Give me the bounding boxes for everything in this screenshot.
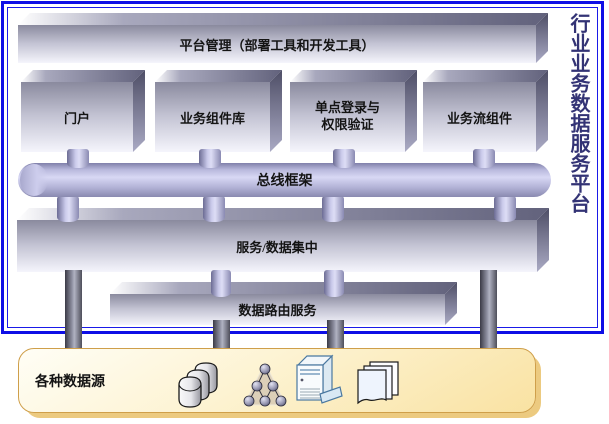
box-top-face (17, 208, 549, 220)
box-top-face (21, 70, 145, 82)
bus-connector (203, 196, 225, 222)
documents-icon (355, 360, 401, 408)
bus-connector (494, 196, 516, 222)
component-library-box: 业务组件库 (155, 70, 282, 152)
platform-management-label: 平台管理（部署工具和开发工具） (18, 25, 536, 63)
box-right-face (270, 70, 282, 152)
box-top-face (423, 70, 548, 82)
box-top-face (155, 70, 282, 82)
database-stack-icon (177, 362, 221, 410)
bus-connector (199, 149, 221, 168)
box-right-face (536, 70, 548, 152)
bus-framework-label: 总线框架 (257, 170, 313, 190)
data-routing-service-label: 数据路由服务 (110, 294, 445, 325)
sso-auth-box: 单点登录与 权限验证 (290, 70, 417, 152)
portal-label: 门户 (21, 82, 133, 152)
bus-connector (333, 149, 355, 168)
box-top-face (110, 282, 457, 294)
datasources-panel: 各种数据源 (18, 348, 536, 413)
routing-connector (211, 270, 231, 297)
workflow-component-label: 业务流组件 (423, 82, 536, 152)
box-top-face (18, 13, 548, 25)
service-data-centralization-label: 服务/数据集中 (17, 220, 537, 272)
sso-auth-label: 单点登录与 权限验证 (290, 82, 405, 152)
bus-connector (473, 149, 495, 168)
bus-connector (57, 196, 79, 222)
bus-connector (67, 149, 89, 168)
bus-framework-cylinder: 总线框架 (18, 163, 551, 197)
datasource-pillar (65, 270, 82, 358)
routing-connector (324, 270, 344, 297)
box-right-face (133, 70, 145, 152)
box-top-face (290, 70, 417, 82)
data-routing-service-box: 数据路由服务 (110, 282, 457, 325)
portal-box: 门户 (21, 70, 145, 152)
datasource-pillar (480, 270, 497, 358)
architecture-diagram: 行业业务数据服务平台 平台管理（部署工具和开发工具） 门户 业务组件库 单点登录… (0, 0, 609, 424)
pc-tower-icon (292, 353, 344, 411)
component-library-label: 业务组件库 (155, 82, 270, 152)
datasources-label: 各种数据源 (35, 349, 105, 412)
bus-connector (322, 196, 344, 222)
box-right-face (405, 70, 417, 152)
platform-management-box: 平台管理（部署工具和开发工具） (18, 13, 548, 63)
workflow-component-box: 业务流组件 (423, 70, 548, 152)
service-data-centralization-box: 服务/数据集中 (17, 208, 549, 272)
vertical-platform-title: 行业业务数据服务平台 (560, 9, 596, 217)
node-pyramid-icon (241, 360, 289, 408)
